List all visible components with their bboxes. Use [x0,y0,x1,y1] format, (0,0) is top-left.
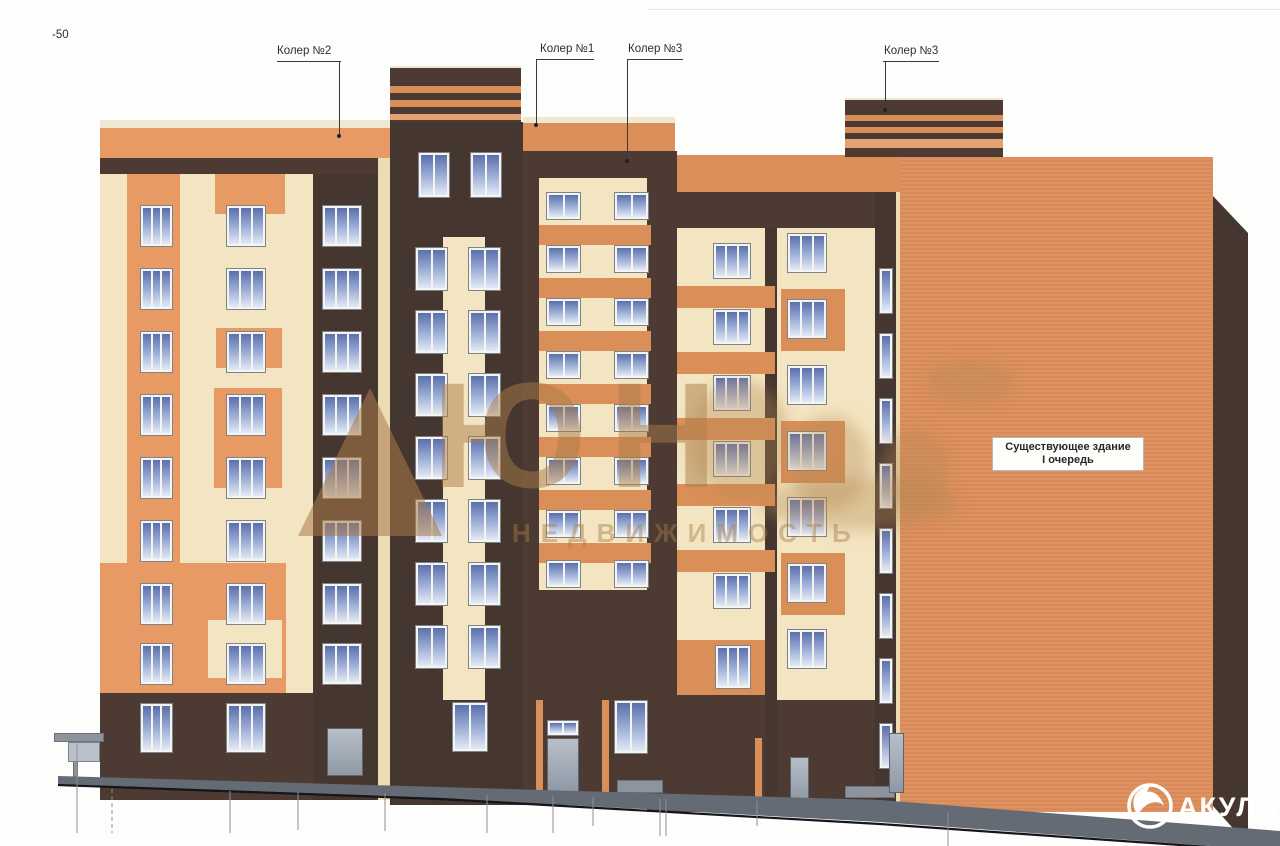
leader-line [536,59,537,125]
paint-label-koler3-left: Колер №3 [628,43,682,55]
corner-brand-watermark: АКУЛА [1105,774,1280,840]
paint-label-koler1: Колер №1 [540,43,594,55]
existing-building-side-face [1213,196,1248,845]
leader-dot [337,134,341,138]
leader-line [627,59,628,161]
elevation-drawing: ЮН НЕДВИЖИМОСТЬ Существующее здание I оч… [0,0,1280,846]
elevation-mark: -50 [52,29,69,41]
ground-and-plinth [0,0,1280,846]
leader-line [883,61,939,62]
paint-label-koler2: Колер №2 [277,45,331,57]
leader-line [536,59,594,60]
leader-line [339,61,340,136]
leader-dot [625,159,629,163]
leader-dot [534,123,538,127]
corner-brand-text: АКУЛА [1178,792,1279,823]
leader-line [277,61,341,62]
leader-line [627,59,683,60]
leader-dot [883,108,887,112]
paint-label-koler3-right: Колер №3 [884,45,938,57]
leader-line [885,61,886,110]
